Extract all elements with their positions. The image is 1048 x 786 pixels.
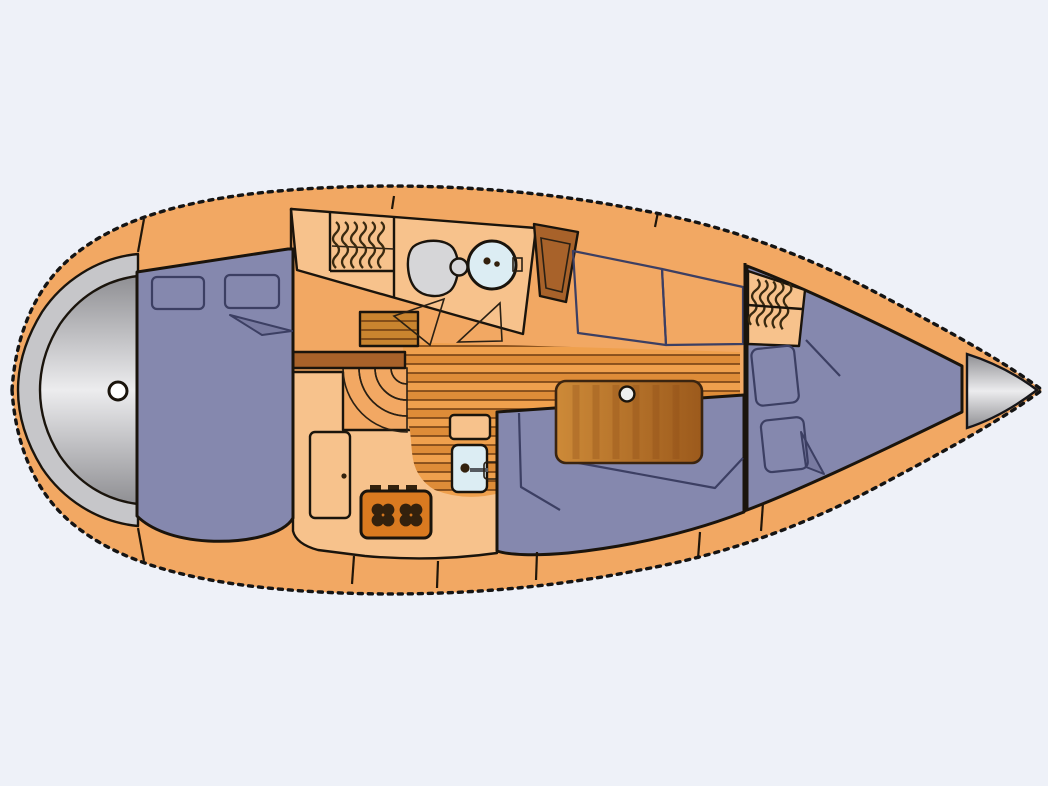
sailboat-floor-plan-image (0, 0, 1048, 786)
basin-faucet-icon (483, 257, 490, 264)
aft-berth (137, 249, 293, 541)
saloon-table (556, 381, 702, 463)
stove (361, 485, 431, 538)
sailboat-floor-plan (0, 0, 1048, 786)
companionway-beam (293, 352, 405, 368)
stern-fitting (109, 382, 127, 400)
aft-berth-cushion (137, 249, 293, 541)
faucet-base (460, 463, 469, 472)
toilet-pump (451, 259, 468, 276)
galley-locker-knob (341, 473, 346, 478)
basin-drain-icon (494, 261, 500, 267)
washbasin (468, 241, 516, 289)
table-cup-recess (620, 387, 635, 402)
sink-counter (450, 415, 490, 439)
